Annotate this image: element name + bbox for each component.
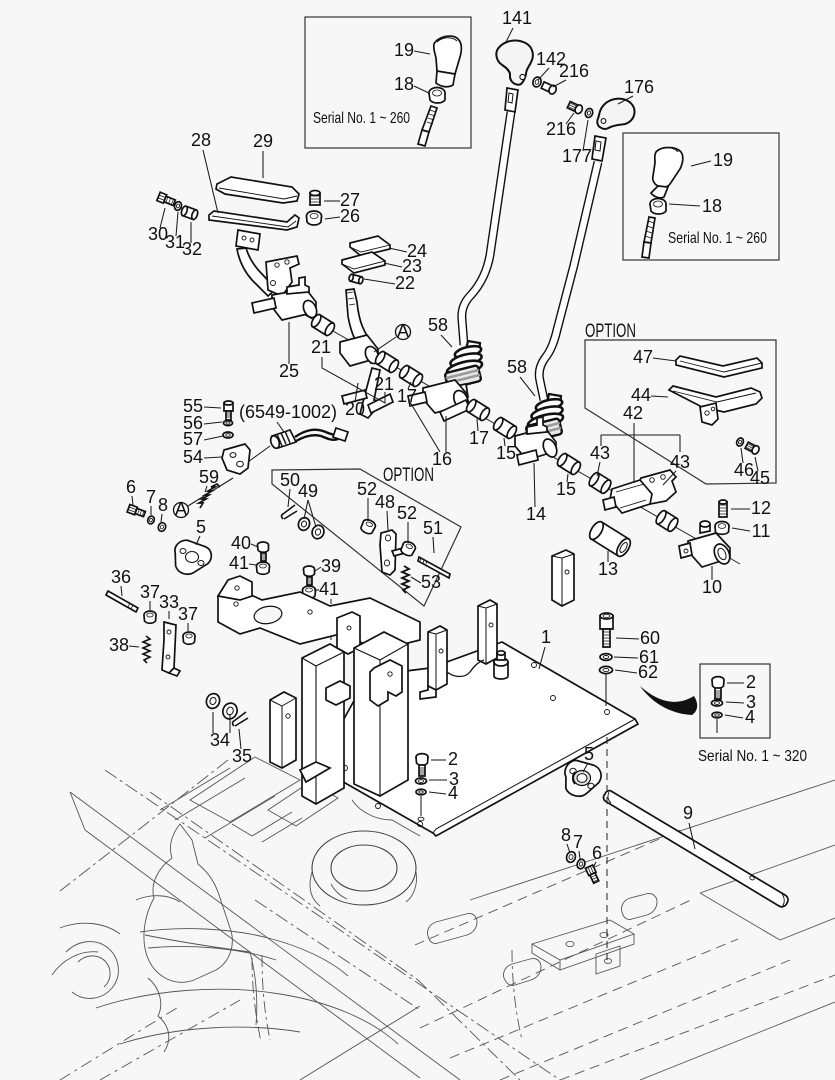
svg-text:176: 176	[624, 77, 654, 97]
svg-text:6: 6	[592, 843, 602, 863]
svg-text:43: 43	[590, 443, 610, 463]
svg-text:141: 141	[502, 8, 532, 28]
svg-text:43: 43	[670, 452, 690, 472]
svg-text:OPTION: OPTION	[585, 321, 636, 342]
svg-text:7: 7	[573, 832, 583, 852]
svg-text:49: 49	[298, 481, 318, 501]
svg-text:Serial No. 1 ~ 260: Serial No. 1 ~ 260	[313, 110, 410, 127]
svg-text:OPTION: OPTION	[383, 465, 434, 486]
svg-text:A: A	[175, 499, 187, 519]
svg-text:15: 15	[556, 479, 576, 499]
svg-text:62: 62	[638, 662, 658, 682]
svg-text:26: 26	[340, 206, 360, 226]
svg-text:9: 9	[683, 803, 693, 823]
svg-text:8: 8	[158, 495, 168, 515]
svg-text:58: 58	[507, 357, 527, 377]
svg-text:18: 18	[394, 74, 414, 94]
svg-text:17: 17	[397, 386, 417, 406]
svg-text:29: 29	[253, 131, 273, 151]
svg-text:53: 53	[421, 572, 441, 592]
svg-text:5: 5	[584, 744, 594, 764]
svg-text:2: 2	[746, 672, 756, 692]
svg-text:32: 32	[182, 239, 202, 259]
svg-text:2: 2	[448, 749, 458, 769]
svg-text:5: 5	[196, 517, 206, 537]
svg-text:54: 54	[183, 447, 203, 467]
svg-text:18: 18	[702, 196, 722, 216]
svg-text:4: 4	[448, 783, 458, 803]
svg-text:52: 52	[397, 503, 417, 523]
svg-text:47: 47	[633, 347, 653, 367]
svg-text:44: 44	[631, 385, 651, 405]
svg-text:57: 57	[183, 429, 203, 449]
svg-text:28: 28	[191, 130, 211, 150]
svg-text:60: 60	[640, 628, 660, 648]
svg-text:59: 59	[199, 467, 219, 487]
svg-text:19: 19	[394, 40, 414, 60]
svg-text:42: 42	[623, 403, 643, 423]
svg-text:37: 37	[178, 604, 198, 624]
svg-text:41: 41	[229, 553, 249, 573]
svg-text:58: 58	[428, 315, 448, 335]
svg-text:1: 1	[541, 627, 551, 647]
svg-text:7: 7	[146, 487, 156, 507]
svg-text:35: 35	[232, 746, 252, 766]
svg-text:21: 21	[311, 337, 331, 357]
svg-text:45: 45	[750, 468, 770, 488]
svg-text:40: 40	[231, 533, 251, 553]
svg-text:4: 4	[745, 707, 755, 727]
svg-text:(6549-1002): (6549-1002)	[239, 402, 337, 422]
svg-text:14: 14	[526, 504, 546, 524]
svg-text:22: 22	[395, 273, 415, 293]
svg-text:37: 37	[140, 582, 160, 602]
svg-text:177: 177	[562, 146, 592, 166]
svg-text:48: 48	[375, 492, 395, 512]
svg-text:21: 21	[374, 374, 394, 394]
svg-text:15: 15	[496, 443, 516, 463]
svg-text:39: 39	[321, 556, 341, 576]
svg-text:36: 36	[111, 567, 131, 587]
svg-text:16: 16	[432, 449, 452, 469]
svg-text:216: 216	[559, 61, 589, 81]
svg-text:51: 51	[423, 518, 443, 538]
svg-text:17: 17	[469, 428, 489, 448]
svg-text:8: 8	[561, 825, 571, 845]
svg-text:A: A	[397, 321, 409, 341]
svg-text:38: 38	[109, 635, 129, 655]
svg-text:12: 12	[751, 498, 771, 518]
svg-text:33: 33	[159, 592, 179, 612]
svg-text:41: 41	[319, 579, 339, 599]
svg-text:19: 19	[713, 150, 733, 170]
svg-text:6: 6	[126, 477, 136, 497]
svg-text:216: 216	[546, 119, 576, 139]
svg-text:11: 11	[752, 521, 771, 541]
svg-text:Serial No. 1 ~ 260: Serial No. 1 ~ 260	[668, 230, 767, 247]
svg-text:Serial No. 1 ~ 320: Serial No. 1 ~ 320	[698, 748, 807, 765]
